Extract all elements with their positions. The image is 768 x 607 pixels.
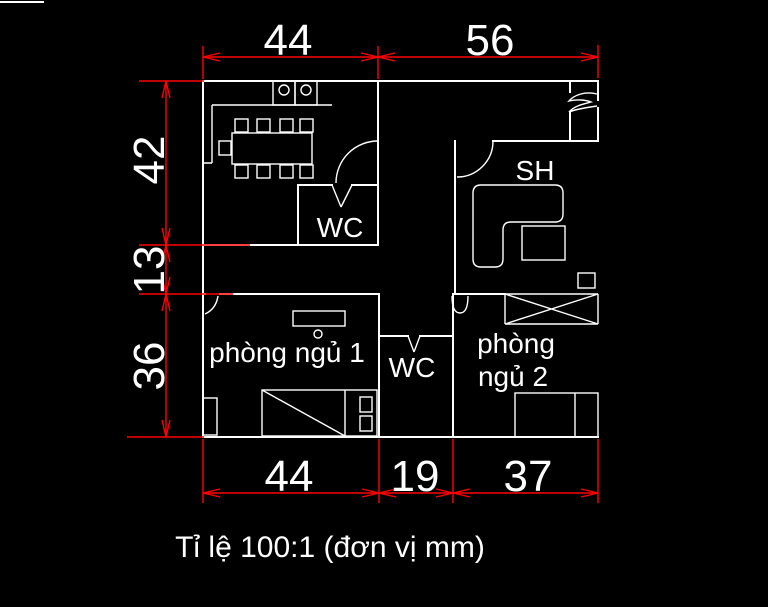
wardrobe-crossbox — [505, 294, 598, 324]
kitchen-door-arc — [336, 141, 378, 183]
screen-edge-artifact — [0, 1, 44, 3]
label-wc1: WC — [317, 212, 364, 243]
stove-burner — [301, 85, 311, 95]
bed-1-detail — [262, 390, 345, 436]
dimension-lines — [127, 45, 598, 503]
label-bedroom1: phòng ngủ 1 — [209, 337, 365, 368]
side-table — [578, 273, 595, 288]
coffee-table — [522, 226, 565, 260]
label-wc2: WC — [389, 352, 436, 383]
scale-caption: Tỉ lệ 100:1 (đơn vị mm) — [175, 531, 485, 564]
dining-chair — [257, 119, 270, 132]
wc1-door-mark — [332, 185, 352, 207]
label-bedroom2-line2: ngủ 2 — [478, 361, 548, 392]
dining-chair — [235, 165, 248, 178]
dining-chair — [280, 165, 293, 178]
dim-left-1: 42 — [125, 136, 174, 185]
bedroom2-door-arc — [452, 296, 468, 313]
dim-top-2: 56 — [466, 16, 515, 65]
floor-plan-drawing: 44 56 42 13 36 44 19 37 WC SH phòng ngủ … — [0, 0, 768, 607]
dim-bottom-2: 19 — [391, 452, 440, 501]
dining-chair — [219, 141, 231, 155]
dining-chair — [235, 119, 248, 132]
nightstand-drawer — [360, 397, 372, 412]
cad-floor-plan-canvas: 44 56 42 13 36 44 19 37 WC SH phòng ngủ … — [0, 0, 768, 607]
dim-bottom-3: 37 — [504, 452, 553, 501]
label-bedroom2-line1: phòng — [477, 328, 555, 359]
dining-chair — [300, 119, 313, 132]
dining-table — [232, 133, 312, 164]
wc2-door-mark — [408, 336, 420, 352]
dining-chair — [280, 119, 293, 132]
living-door-arc — [457, 141, 493, 177]
dim-left-2: 13 — [125, 246, 174, 295]
nightstand-drawer — [360, 416, 372, 431]
wall-shelf — [293, 311, 345, 326]
dim-left-3: 36 — [125, 342, 174, 391]
dining-chair — [300, 165, 313, 178]
dim-top-1: 44 — [264, 16, 313, 65]
bed-2 — [515, 393, 598, 437]
bedroom1-door-arc — [205, 296, 218, 314]
label-living-sh: SH — [516, 155, 555, 186]
annotation-text: 44 56 42 13 36 44 19 37 WC SH phòng ngủ … — [125, 16, 555, 564]
dining-chair — [257, 165, 270, 178]
wall-break-symbol — [569, 93, 597, 112]
closet — [203, 398, 217, 435]
dim-bottom-1: 44 — [265, 452, 314, 501]
stove-burner — [279, 85, 289, 95]
extension-lines-top — [203, 45, 598, 79]
